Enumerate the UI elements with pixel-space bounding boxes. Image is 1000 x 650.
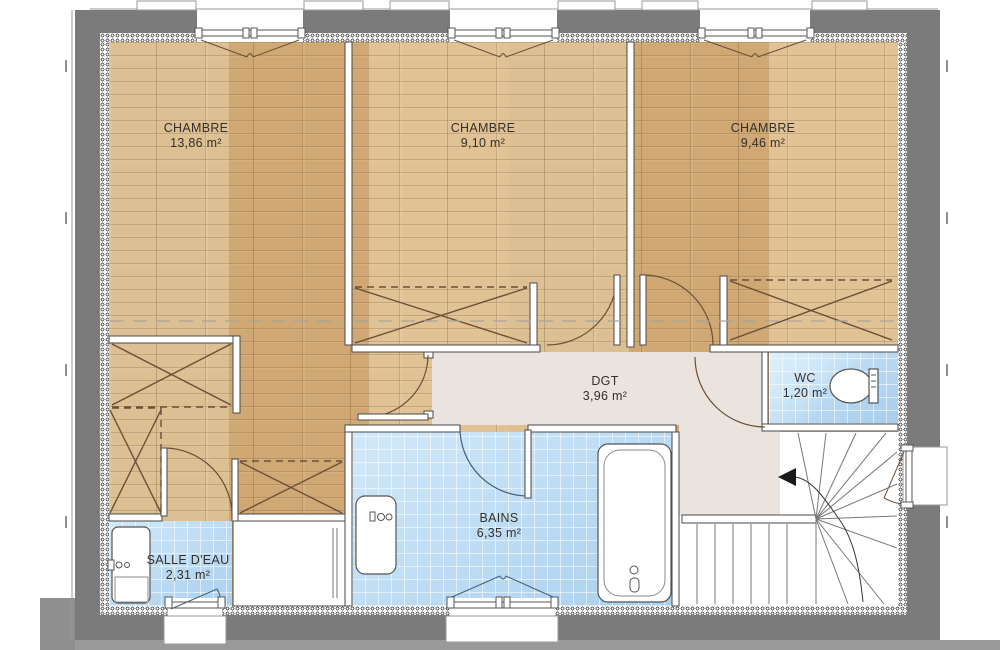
closet-chambre1-c: [240, 461, 342, 513]
room-area: 6,35 m²: [409, 526, 589, 541]
room-area: 9,10 m²: [383, 136, 583, 151]
room-area: 2,31 m²: [103, 568, 273, 583]
door-chambre2: [547, 275, 620, 345]
closet-chambre1-b: [110, 408, 161, 513]
window-top-chambre1: [195, 10, 305, 57]
room-label-wc: WC 1,20 m²: [745, 371, 865, 401]
washbasin-bains: [356, 496, 396, 574]
room-name: DGT: [515, 374, 695, 389]
door-exterior-salle-deau: [164, 589, 226, 644]
closet-chambre2: [355, 287, 527, 343]
room-area: 13,86 m²: [96, 136, 296, 151]
room-area: 9,46 m²: [663, 136, 863, 151]
closet-chambre1-a: [112, 344, 231, 407]
room-label-bains: BAINS 6,35 m²: [409, 511, 589, 541]
stair-walking-line: [795, 477, 863, 602]
floor-plan: CHAMBRE 13,86 m² CHAMBRE 9,10 m² CHAMBRE…: [0, 0, 1000, 650]
room-label-chambre2: CHAMBRE 9,10 m²: [383, 121, 583, 151]
door-bains: [460, 428, 531, 498]
door-chambre1: [358, 355, 428, 420]
room-label-chambre1: CHAMBRE 13,86 m²: [96, 121, 296, 151]
room-label-chambre3: CHAMBRE 9,46 m²: [663, 121, 863, 151]
room-name: BAINS: [409, 511, 589, 526]
door-salle-deau: [161, 448, 232, 516]
room-label-dgt: DGT 3,96 m²: [515, 374, 695, 404]
room-area: 3,96 m²: [515, 389, 695, 404]
room-name: WC: [745, 371, 865, 386]
room-area: 1,20 m²: [745, 386, 865, 401]
stair-direction-arrow-icon: [778, 468, 796, 486]
bathtub: [598, 444, 671, 602]
stair-straight-treads: [697, 524, 787, 604]
room-name: CHAMBRE: [96, 121, 296, 136]
room-name: CHAMBRE: [663, 121, 863, 136]
room-name: SALLE D'EAU: [103, 553, 273, 568]
window-top-chambre2: [448, 10, 559, 57]
window-bottom-bains: [446, 576, 558, 642]
exterior-outline-lines: [66, 9, 947, 640]
window-top-chambre3: [698, 10, 814, 57]
room-label-salle-deau: SALLE D'EAU 2,31 m²: [103, 553, 273, 583]
room-name: CHAMBRE: [383, 121, 583, 136]
door-chambre3: [640, 275, 713, 345]
closet-chambre3: [730, 280, 892, 340]
